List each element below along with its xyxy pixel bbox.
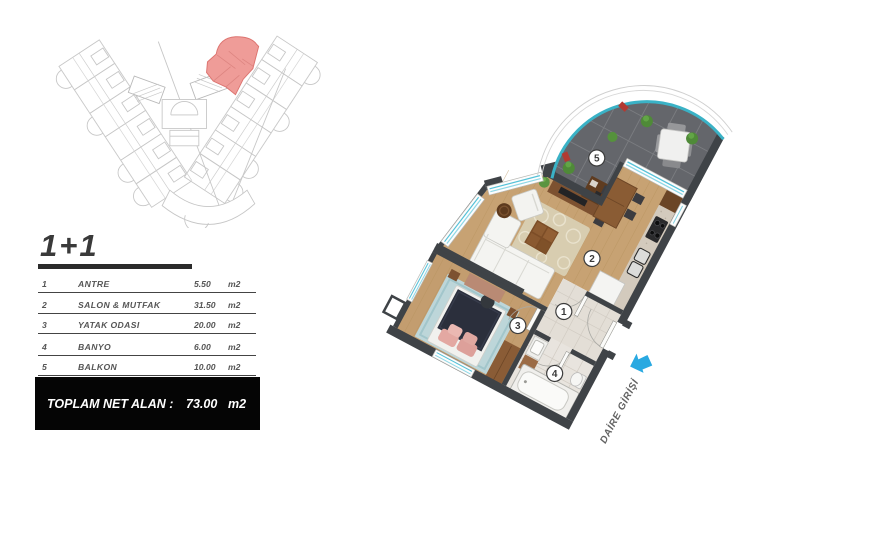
svg-text:2: 2 bbox=[589, 254, 595, 265]
svg-text:5: 5 bbox=[594, 153, 600, 164]
svg-text:4: 4 bbox=[552, 369, 558, 380]
svg-text:3: 3 bbox=[515, 321, 521, 332]
svg-text:1: 1 bbox=[561, 307, 567, 318]
svg-text:DAİRE GİRİŞİ: DAİRE GİRİŞİ bbox=[597, 376, 642, 445]
